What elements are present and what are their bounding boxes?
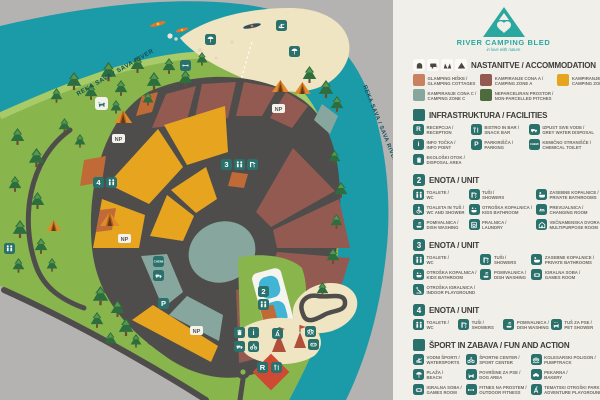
np-label: NP	[275, 107, 283, 113]
facilities-items: RRECEPCIJA /RECEPTION BISTRO IN BAR /SNA…	[413, 124, 594, 167]
zone-a-swatch	[480, 74, 492, 86]
legend-item-bakery: PEKARNA /BAKERY	[531, 369, 600, 382]
legend-item-zone-b: KAMPIRANJE CONA B /CAMPING ZONE B	[557, 74, 600, 87]
accommodation-type-icons	[413, 59, 467, 71]
legend-item-dish-washing: POMIVALNICA /DISH WASHING	[503, 319, 549, 332]
sport-items: VODNI ŠPORTI /WATERSPORTS ŠPORTNI CENTER…	[413, 354, 594, 397]
legend-item-zone-c: KAMPIRANJE CONA C /CAMPING ZONE C	[413, 89, 476, 102]
legend-item-reception: RRECEPCIJA /RECEPTION	[413, 124, 467, 137]
fork-knife-icon	[471, 124, 482, 135]
trash-bin-icon	[413, 154, 424, 165]
bathtub-icon	[531, 254, 542, 265]
legend-item-glamping: GLAMPING HIŠKE /GLAMPING COTTAGES	[413, 74, 476, 87]
legend-item-grey-water: IZPUST SIVE VODE /GREY WATER DISPOSAL	[529, 124, 594, 137]
marker-parking: P	[158, 298, 169, 309]
legend-item-adventure-playground: TEMATSKI OTROŠKI PARK /ADVENTURE PLAYGRO…	[531, 384, 600, 397]
logo-mountain-icon	[481, 6, 527, 38]
pebble	[198, 48, 202, 52]
legend-item-pumptrack: KOLESARSKI POLIGON /PUMPTRACK	[531, 354, 600, 367]
legend-panel: RIVER CAMPING BLED in love with nature N…	[393, 0, 600, 400]
marker-sport-center	[248, 341, 259, 352]
double-tent-icon	[441, 59, 453, 71]
logo-tagline: in love with nature	[413, 47, 594, 52]
legend-item-dish-washing: POMIVALNICA /DISH WASHING	[480, 269, 527, 282]
changing-table-icon	[536, 204, 547, 215]
bicycle-icon	[466, 354, 477, 365]
legend-item-indoor-playground: OTROŠKA IGRALNICA /INDOOR PLAYGROUND	[413, 284, 476, 297]
legend-item-non-parcelled: NEPARCELIRAN PROSTOR /NON-PARCELLED PITC…	[480, 89, 553, 102]
legend-item-beach: PLAŽA /BEACH	[413, 369, 462, 382]
section-accommodation-header: NASTANITVE / ACCOMMODATION	[413, 59, 594, 71]
unit3-items: TOALETE /WC TUŠI /SHOWERS ZASEBNE KOPALN…	[413, 254, 594, 297]
legend-item-changing-room: PREVIJALNICA /CHANGING ROOM	[536, 204, 600, 217]
unit4-items: TOALETE /WC TUŠI /SHOWERS POMIVALNICA /D…	[413, 319, 594, 332]
marker-adventure-playground	[272, 328, 283, 339]
legend-item-parking: PPARKIRIŠČA /PARKING	[471, 139, 525, 152]
np-label: NP	[121, 237, 129, 243]
marker-games-room	[308, 339, 319, 350]
svg-text:P: P	[161, 299, 166, 308]
marker-wc	[106, 177, 117, 188]
wc-icon	[413, 319, 424, 330]
legend-item-zone-a: KAMPIRANJE CONA A /CAMPING ZONE A	[480, 74, 553, 87]
unit4-number-badge: 4	[413, 304, 425, 316]
svg-text:CHEMI: CHEMI	[154, 260, 164, 264]
wc-icon	[413, 189, 424, 200]
marker-unit-2: 2	[258, 286, 269, 297]
section-facilities-header: INFRASTRUKTURA / FACILITIES	[413, 109, 594, 121]
non-parcelled-swatch	[480, 89, 492, 101]
legend-item-disposal-area: EKOLOŠKI OTOK /DISPOSAL AREA	[413, 154, 467, 167]
np-label: NP	[193, 329, 201, 335]
svg-text:3: 3	[224, 160, 228, 169]
bathtub-icon	[536, 189, 547, 200]
marker-bistro	[271, 362, 282, 373]
svg-text:i: i	[252, 328, 254, 337]
section-sport-header: ŠPORT IN ZABAVA / FUN AND ACTION	[413, 339, 594, 351]
legend-item-private-bathrooms: ZASEBNE KOPALNICE /PRIVATE BATHROOMS	[536, 189, 600, 202]
legend-item-wc: TOALETE /WC	[413, 189, 465, 202]
playground-tower-icon	[531, 384, 542, 395]
glamping-swatch	[413, 74, 425, 86]
legend-item-wc: TOALETE /WC	[413, 319, 456, 332]
zone-c-swatch	[413, 89, 425, 101]
section-title: INFRASTRUKTURA / FACILITIES	[429, 111, 547, 120]
marker-outdoor-fitness	[180, 60, 191, 71]
camping-map-page: REKA SAVA / SAVA RIVER REKA SAVA / SAVA …	[0, 0, 600, 400]
marker-shower	[247, 159, 258, 170]
marker-greywater	[234, 341, 245, 352]
section-title: ENOTA / UNIT	[429, 176, 479, 185]
dish-washing-icon	[480, 269, 491, 280]
legend-item-kids-bathroom: OTROŠKA KOPALNICA /KIDS BATHROOM	[413, 269, 476, 282]
marker-beach	[289, 46, 300, 57]
legend-item-showers: TUŠI /SHOWERS	[458, 319, 501, 332]
facilities-swatch	[413, 109, 425, 121]
legend-item-dog-area: POVRŠINE ZA PSE /DOG AREA	[466, 369, 527, 382]
dog-icon	[466, 369, 477, 380]
pumptrack-icon	[531, 354, 542, 365]
marker-dog-area	[95, 97, 108, 110]
zone-b-swatch	[557, 74, 569, 86]
section-title: ENOTA / UNIT	[429, 241, 479, 250]
unit2-items: TOALETE /WC TUŠI /SHOWERS ZASEBNE KOPALN…	[413, 189, 594, 232]
legend-item-bistro: BISTRO IN BAR /SNACK BAR	[471, 124, 525, 137]
chemical-toilet-icon: CHEMI	[529, 139, 540, 150]
wheelchair-icon	[413, 204, 424, 215]
pebble	[230, 40, 233, 43]
tent-icon	[455, 59, 467, 71]
marker-wc	[258, 299, 269, 310]
parking-icon: P	[471, 139, 482, 150]
marker-reception: R	[257, 362, 268, 373]
kayak-icon	[413, 354, 424, 365]
legend-item-watersports: VODNI ŠPORTI /WATERSPORTS	[413, 354, 462, 367]
legend-item-laundry: PRALNICA /LAUNDRY	[469, 219, 532, 232]
legend-item-dish-washing: POMIVALNICA /DISH WASHING	[413, 219, 465, 232]
unit2-number-badge: 2	[413, 174, 425, 186]
legend-item-games-room: IGRALNA SOBA /GAMES ROOM	[413, 384, 462, 397]
reception-icon: R	[413, 124, 424, 135]
marker-greywater	[153, 270, 164, 281]
gamepad-icon	[413, 384, 424, 395]
legend-item-accessible-wc: TOALETA IN TUŠ /WC AND SHOWER	[413, 204, 465, 217]
info-icon: i	[413, 139, 424, 150]
roundabout-center	[240, 369, 245, 374]
section-title: ENOTA / UNIT	[429, 306, 479, 315]
marker-unit-4: 4	[93, 177, 104, 188]
shower-icon	[480, 254, 491, 265]
legend-item-pet-shower: TUŠ ZA PSE /PET SHOWER	[551, 319, 594, 332]
multipurpose-room-icon	[536, 219, 547, 230]
marker-disposal	[234, 327, 245, 338]
washing-machine-icon	[469, 219, 480, 230]
pebble	[215, 57, 218, 60]
svg-text:2: 2	[261, 287, 265, 296]
marker-chemical-toilet: CHEMI	[153, 256, 164, 267]
legend-item-outdoor-fitness: FITNES NA PROSTEM /OUTDOOR FITNESS	[466, 384, 527, 397]
section-unit4-header: 4 ENOTA / UNIT	[413, 304, 594, 316]
legend-item-showers: TUŠI /SHOWERS	[469, 189, 532, 202]
legend-item-kids-bathroom: OTROŠKA KOPALNICA /KIDS BATHROOM	[469, 204, 532, 217]
dish-washing-icon	[503, 319, 514, 330]
section-unit3-header: 3 ENOTA / UNIT	[413, 239, 594, 251]
campground-map: REKA SAVA / SAVA RIVER REKA SAVA / SAVA …	[0, 0, 395, 400]
legend-item-chemical-toilet: CHEMIKEMIČNO STRANIŠČE /CHEMICAL TOILET	[529, 139, 594, 152]
gamepad-icon	[531, 269, 542, 280]
wc-icon	[413, 254, 424, 265]
marker-beach	[205, 34, 216, 45]
section-title: ŠPORT IN ZABAVA / FUN AND ACTION	[429, 341, 569, 350]
slide-icon	[413, 284, 424, 295]
legend-item-multipurpose-room: VEČNAMENSKA DVORANA /MULTIPURPOSE ROOM	[536, 219, 600, 232]
marker-watersports	[276, 20, 287, 31]
bread-icon	[531, 369, 542, 380]
kids-bath-icon	[469, 204, 480, 215]
legend-item-showers: TUŠI /SHOWERS	[480, 254, 527, 267]
svg-text:R: R	[260, 363, 266, 372]
marker-pumptrack	[305, 326, 316, 337]
legend-item-wc: TOALETE /WC	[413, 254, 476, 267]
shower-icon	[469, 189, 480, 200]
np-label: NP	[115, 137, 123, 143]
caravan-icon	[427, 59, 439, 71]
legend-item-info-point: iINFO TOČKA /INFO POINT	[413, 139, 467, 152]
accommodation-items: GLAMPING HIŠKE /GLAMPING COTTAGES KAMPIR…	[413, 74, 594, 102]
unit3-number-badge: 3	[413, 239, 425, 251]
logo: RIVER CAMPING BLED in love with nature	[413, 0, 594, 52]
sport-swatch	[413, 339, 425, 351]
pet-shower-icon	[551, 319, 562, 330]
legend-item-games-room: IGRALNA SOBA /GAMES ROOM	[531, 269, 594, 282]
shower-icon	[458, 319, 469, 330]
marker-wc	[4, 243, 15, 254]
legend-item-sport-center: ŠPORTNI CENTER /SPORT CENTER	[466, 354, 527, 367]
marker-info: i	[248, 327, 259, 338]
dumbbell-icon	[466, 384, 477, 395]
dish-washing-icon	[413, 219, 424, 230]
section-unit2-header: 2 ENOTA / UNIT	[413, 174, 594, 186]
logo-title: RIVER CAMPING BLED	[413, 38, 594, 47]
beach-umbrella-icon	[413, 369, 424, 380]
legend-item-private-bathrooms: ZASEBNE KOPALNICE /PRIVATE BATHROOMS	[531, 254, 594, 267]
section-title: NASTANITVE / ACCOMMODATION	[471, 61, 596, 70]
kids-bath-icon	[413, 269, 424, 280]
marker-unit-3: 3	[221, 159, 232, 170]
hut-icon	[413, 59, 425, 71]
marker-wc	[234, 159, 245, 170]
truck-icon	[529, 124, 540, 135]
